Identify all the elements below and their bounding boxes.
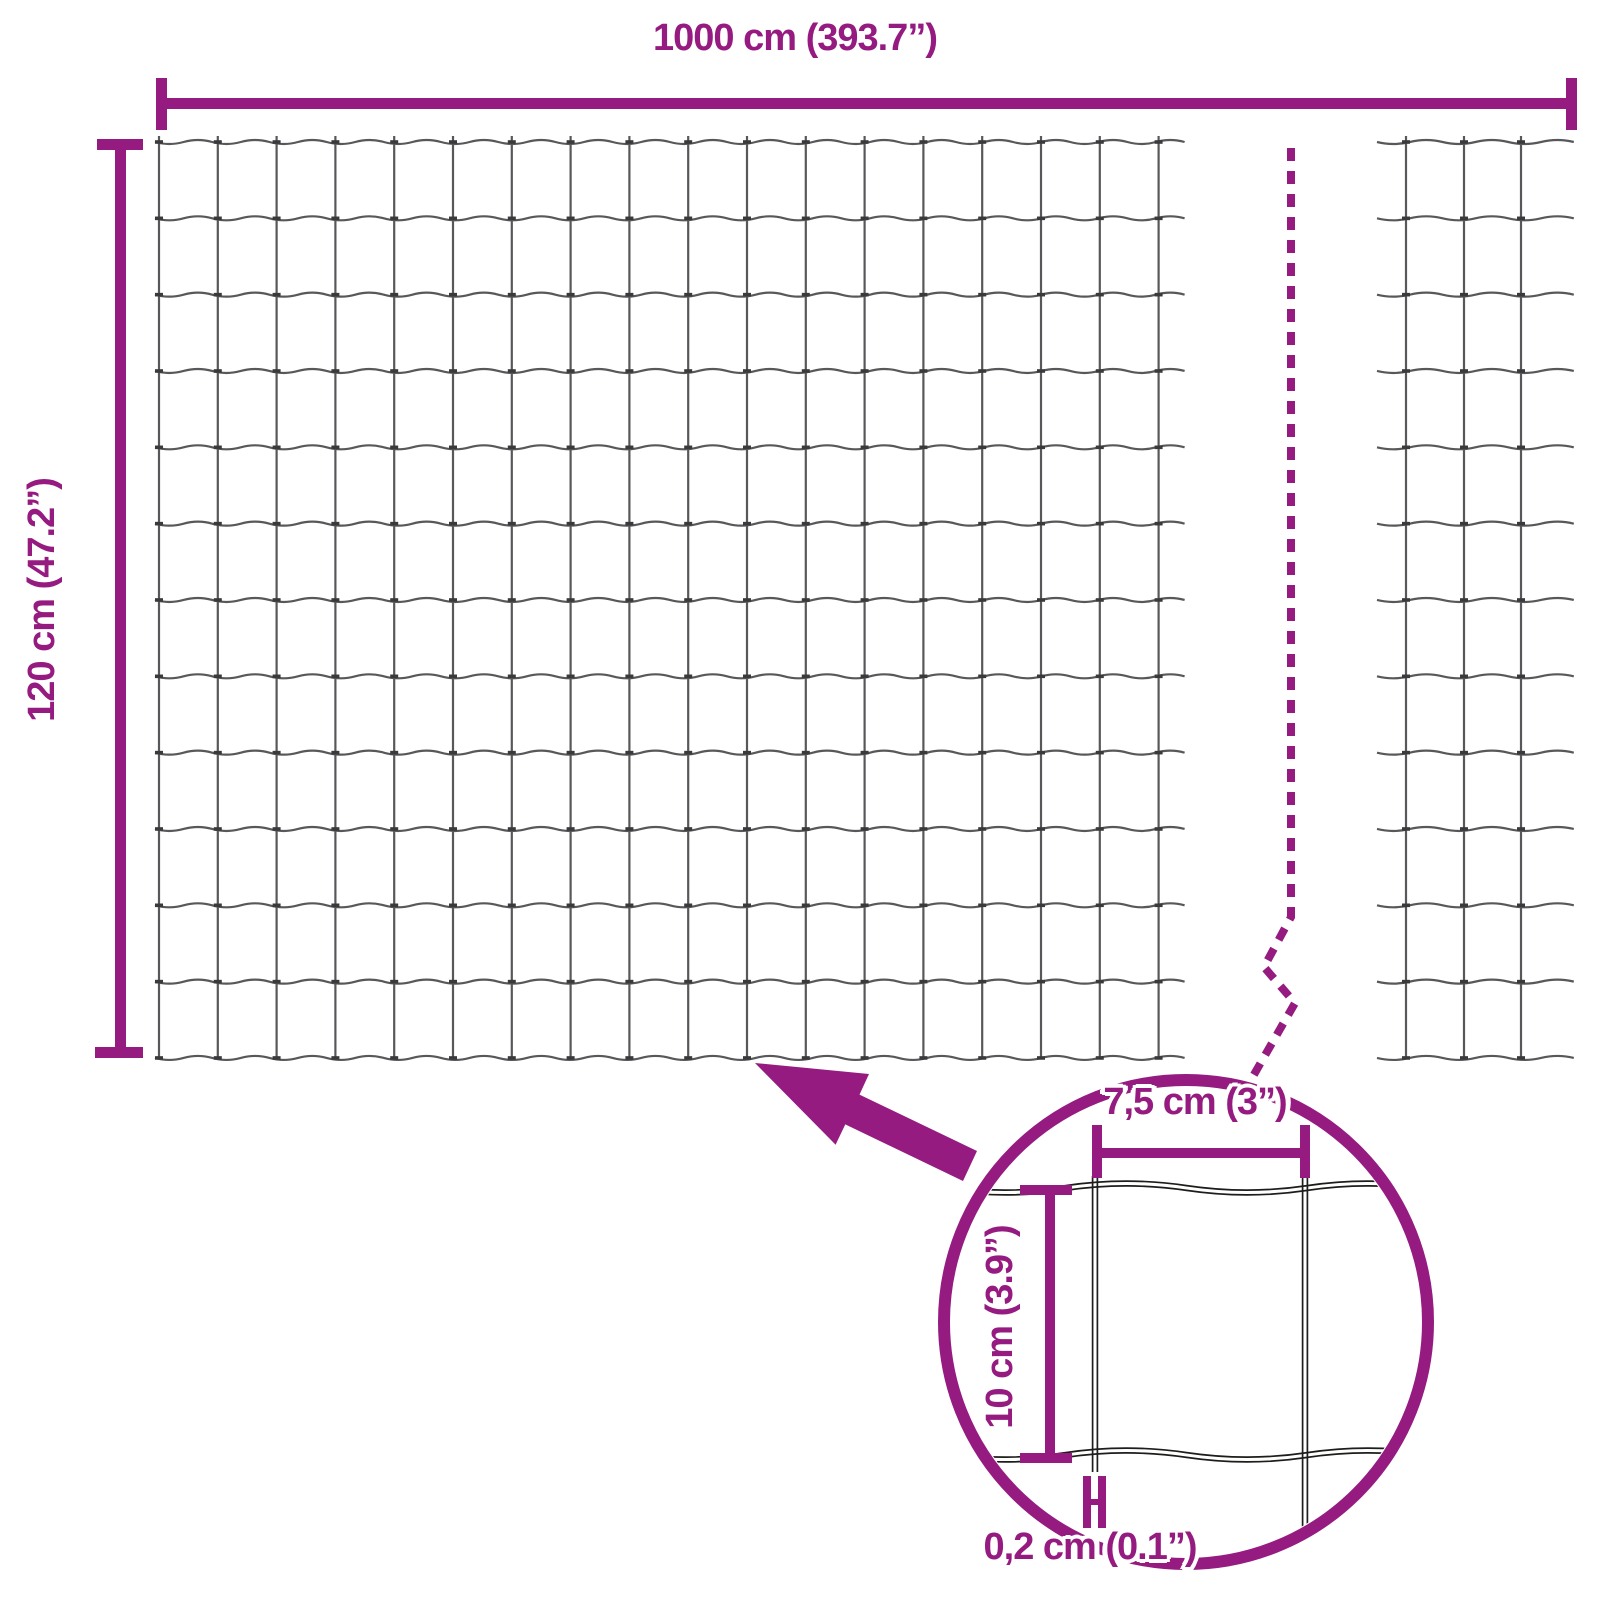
fence-mesh-right	[1377, 136, 1574, 1060]
mesh-opening-width-label: 7,5 cm (3”)	[995, 1079, 1395, 1125]
mesh-opening-height-label: 10 cm (3.9”)	[977, 1127, 1023, 1527]
fence-dimensions-diagram: 1000 cm (393.7”) 120 cm (47.2”) 7,5 cm (…	[0, 0, 1600, 1600]
break-line-dashed	[1248, 148, 1295, 1085]
wire-thickness-label: 0,2 cm (0.1”)	[890, 1524, 1290, 1570]
diagram-svg	[0, 0, 1600, 1600]
width-dimension-line	[156, 78, 1577, 130]
fence-mesh-main	[155, 136, 1185, 1060]
height-dimension-line	[95, 139, 143, 1058]
total-width-label: 1000 cm (393.7”)	[595, 15, 995, 61]
total-height-label: 120 cm (47.2”)	[19, 400, 65, 800]
zoom-arrow	[755, 1063, 977, 1181]
